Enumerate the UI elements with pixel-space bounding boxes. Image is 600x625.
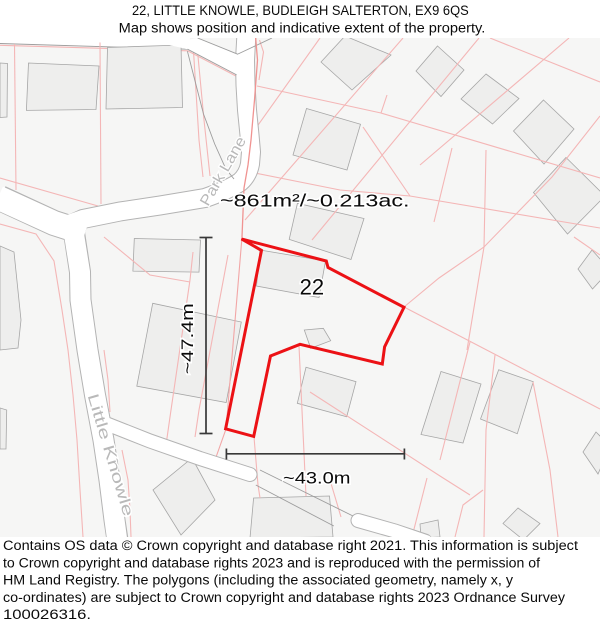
svg-text:100026316.: 100026316.	[3, 607, 91, 622]
svg-text:~47.4m: ~47.4m	[179, 303, 197, 374]
svg-text:to Crown copyright and databas: to Crown copyright and database rights 2…	[3, 555, 540, 570]
svg-text:~861m²/~0.213ac.: ~861m²/~0.213ac.	[220, 190, 410, 210]
svg-text:Contains OS data © Crown copyr: Contains OS data © Crown copyright and d…	[3, 538, 578, 553]
svg-text:HM Land Registry. The polygons: HM Land Registry. The polygons (includin…	[3, 573, 513, 588]
svg-text:co-ordinates) are subject to C: co-ordinates) are subject to Crown copyr…	[3, 590, 565, 605]
svg-text:~43.0m: ~43.0m	[283, 469, 351, 487]
svg-text:22: 22	[300, 275, 325, 300]
svg-text:Map shows position and indicat: Map shows position and indicative extent…	[119, 20, 486, 35]
svg-text:22, LITTLE KNOWLE, BUDLEIGH SA: 22, LITTLE KNOWLE, BUDLEIGH SALTERTON, E…	[132, 3, 469, 18]
